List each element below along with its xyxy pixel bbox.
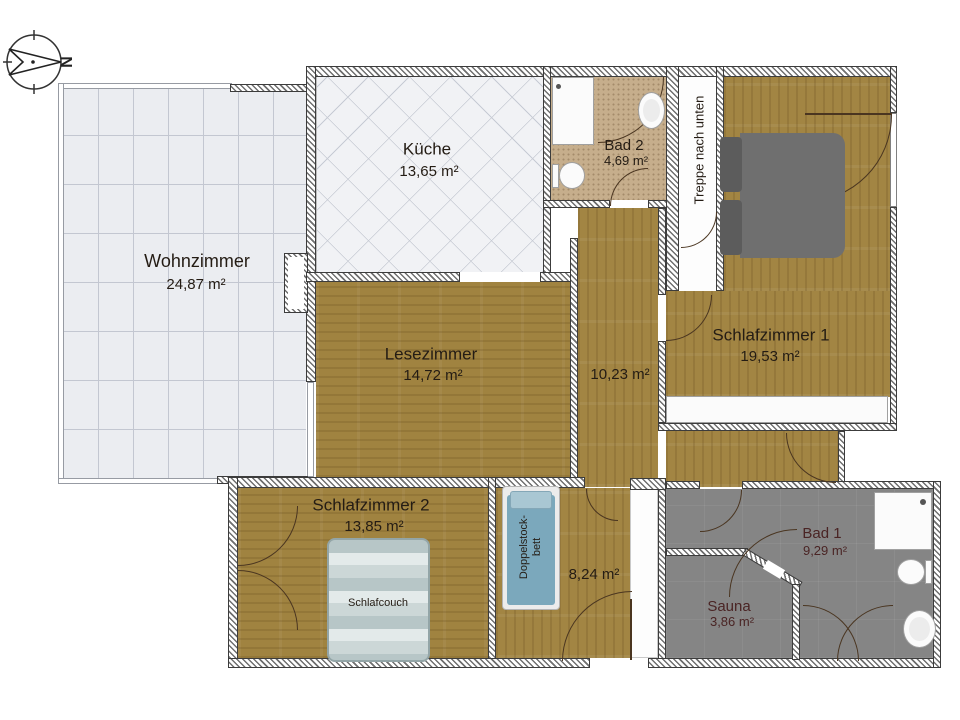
room-label-schlafzimmer2: Schlafzimmer 2 bbox=[312, 497, 429, 516]
shaft bbox=[630, 489, 658, 658]
wall-thin-right bbox=[307, 382, 314, 477]
shower-head-bad1-icon bbox=[920, 499, 926, 505]
bed-pillow-2 bbox=[720, 200, 742, 255]
area-label-schlafzimmer2: 13,85 m² bbox=[344, 519, 403, 536]
wall-thin-bottom bbox=[58, 478, 223, 484]
bed-pillow-1 bbox=[720, 137, 742, 192]
room-label-lesezimmer: Lesezimmer bbox=[385, 346, 478, 365]
flur-og-floor bbox=[578, 208, 658, 487]
wall-thin-left bbox=[58, 83, 64, 484]
area-label-bad1: 9,29 m² bbox=[803, 544, 847, 558]
wall-s1-right-s bbox=[890, 207, 897, 431]
door-leaf-s1 bbox=[805, 113, 892, 115]
wall-bad1-left bbox=[658, 489, 666, 660]
compass-center-dot bbox=[31, 60, 35, 64]
washbasin-bad2-inner bbox=[643, 99, 660, 122]
compass-needle-icon bbox=[9, 49, 61, 75]
wall-flur-s1-s bbox=[658, 341, 666, 423]
wall-lesezimmer-right bbox=[570, 238, 578, 484]
area-label-bad2: 4,69 m² bbox=[604, 154, 648, 168]
label-doppelstockbett-line1: Doppelstock- bbox=[518, 515, 531, 579]
area-label-wohnzimmer: 24,87 m² bbox=[166, 277, 225, 294]
room-label-schlafzimmer1: Schlafzimmer 1 bbox=[712, 327, 829, 346]
wall-bad1-top-e bbox=[742, 481, 941, 489]
room-label-bad1: Bad 1 bbox=[802, 526, 841, 543]
toilet-bad1-icon bbox=[897, 559, 925, 585]
label-doppelstockbett: Doppelstock- bett bbox=[518, 515, 544, 579]
room-label-sauna: Sauna bbox=[707, 599, 750, 616]
room-label-bad2: Bad 2 bbox=[604, 138, 643, 155]
chimney-core bbox=[288, 257, 304, 309]
room-label-kueche: Küche bbox=[403, 141, 451, 160]
area-label-flur-eg: 8,24 m² bbox=[569, 567, 620, 584]
area-label-schlafzimmer1: 19,53 m² bbox=[740, 349, 799, 366]
wall-sauna-top bbox=[666, 548, 748, 556]
wall-s2-right bbox=[488, 477, 496, 668]
label-schlafcouch: Schlafcouch bbox=[348, 597, 408, 609]
wall-kueche-right bbox=[543, 66, 551, 282]
toilet-tank-bad2 bbox=[552, 164, 559, 188]
wall-kueche-bottom-w bbox=[306, 272, 460, 282]
area-label-lesezimmer: 14,72 m² bbox=[403, 368, 462, 385]
shower-head-bad2-icon bbox=[556, 84, 561, 89]
wall-s1-right-n bbox=[890, 66, 897, 113]
wall-bad1-right bbox=[933, 481, 941, 668]
area-label-sauna: 3,86 m² bbox=[710, 615, 754, 629]
toilet-bad2-icon bbox=[559, 162, 585, 189]
label-treppe: Treppe nach unten bbox=[692, 96, 707, 205]
washbasin-bad1-inner bbox=[909, 617, 930, 641]
toilet-tank-bad1 bbox=[925, 560, 932, 584]
wall-top bbox=[306, 66, 897, 77]
wall-thin-top bbox=[58, 83, 232, 89]
compass-north-label: N bbox=[57, 56, 74, 68]
wall-bad2-bottom-w bbox=[543, 200, 610, 208]
floor-plan: Wohnzimmer 24,87 m² Küche 13,65 m² Bad 2… bbox=[0, 0, 960, 720]
wall-wz-top bbox=[230, 84, 308, 92]
wall-bad1-top-w bbox=[666, 481, 700, 489]
double-bed bbox=[740, 133, 845, 258]
wall-lower-left bbox=[228, 477, 238, 668]
wall-flur-s1-n bbox=[658, 208, 666, 295]
wardrobe bbox=[666, 396, 888, 423]
area-label-flur-og: 10,23 m² bbox=[590, 367, 649, 384]
room-label-wohnzimmer: Wohnzimmer bbox=[144, 252, 250, 272]
wall-treppe-left bbox=[666, 66, 679, 291]
bunk-bed-pillow bbox=[510, 491, 552, 509]
label-doppelstockbett-line2: bett bbox=[531, 515, 544, 579]
compass: N bbox=[2, 28, 76, 98]
wall-s1-bottom bbox=[658, 423, 897, 431]
area-label-kueche: 13,65 m² bbox=[399, 164, 458, 181]
door-leaf-entrance bbox=[630, 599, 632, 660]
wall-wz-right bbox=[306, 66, 316, 382]
